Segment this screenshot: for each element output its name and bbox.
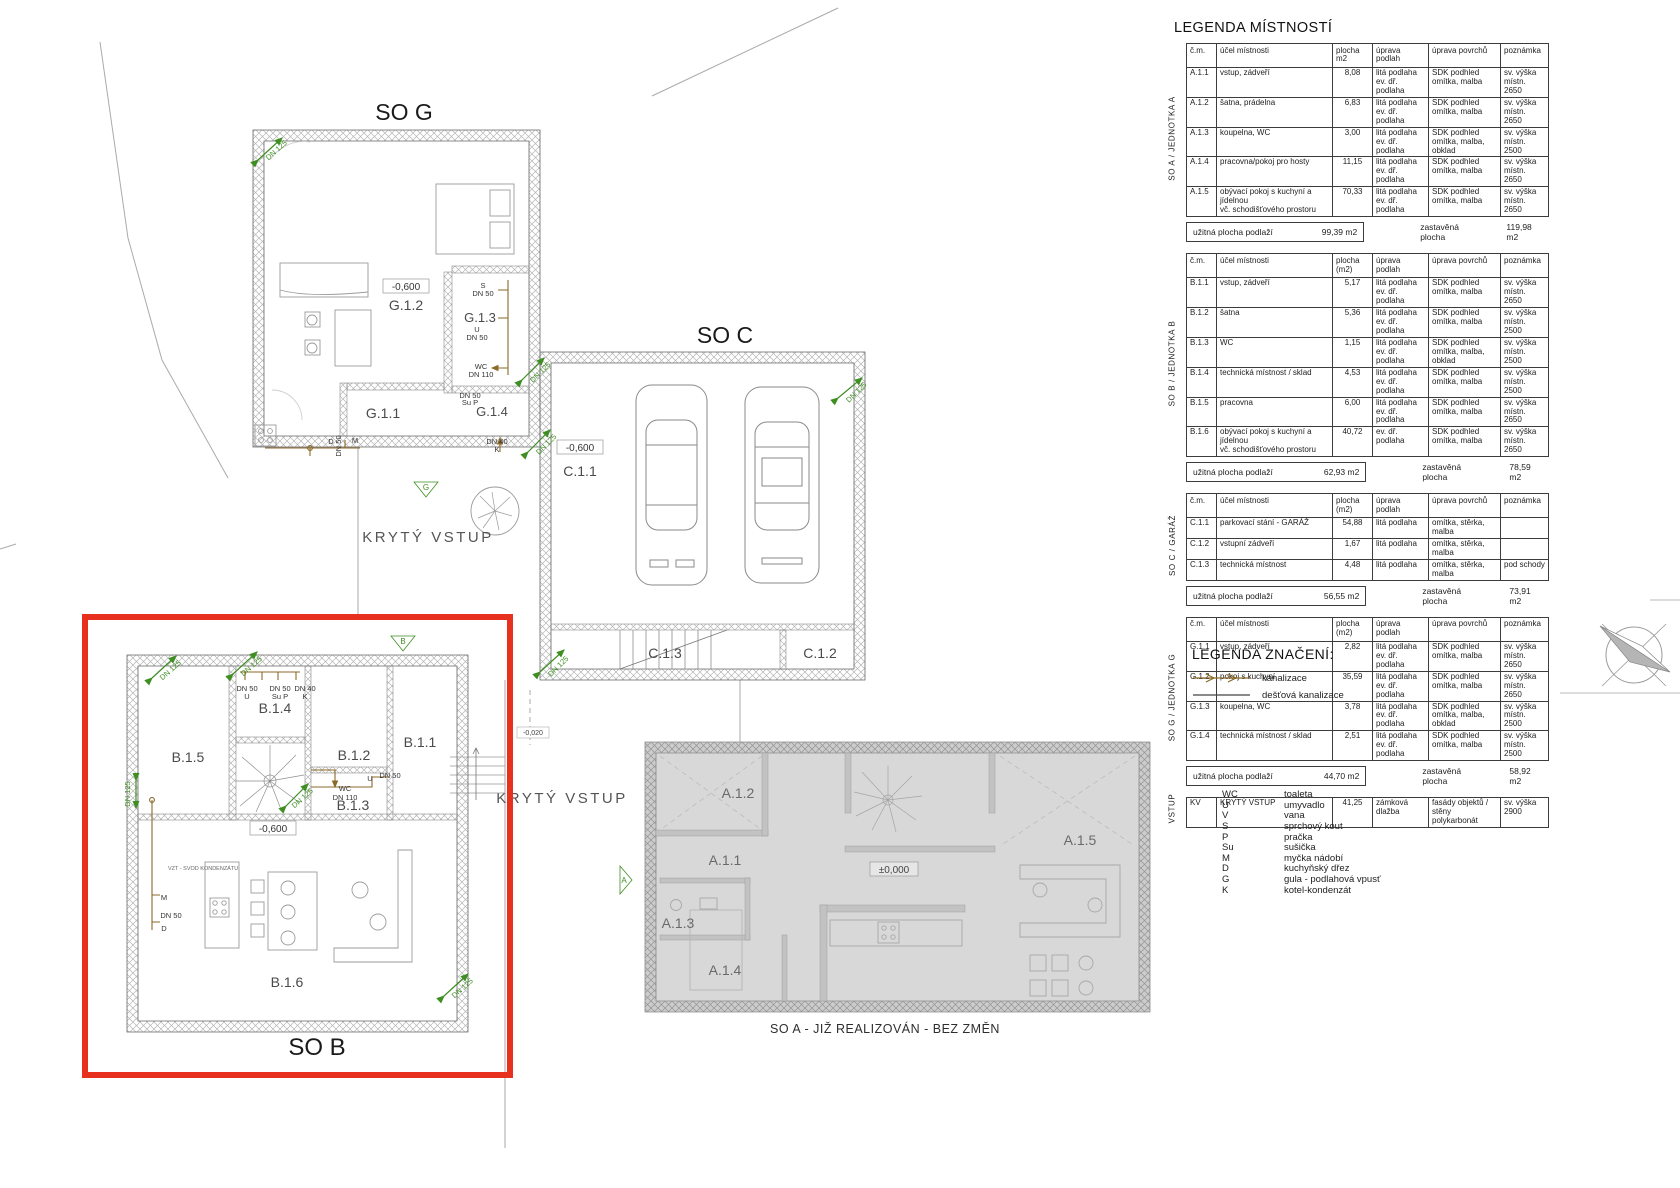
so-b-title: SO B [288, 1034, 345, 1061]
legend-column-header: poznámka [1501, 44, 1549, 68]
legend-table-cell: A.1.3 [1187, 127, 1217, 157]
legend-table-row: B.1.2šatna5,36litá podlaha ev. dř. podla… [1187, 307, 1549, 337]
legend-table-cell: sv. výška místn. 2650 [1501, 427, 1549, 457]
legend-table-cell: omítka, stěrka, malba [1429, 559, 1501, 580]
svg-text:M: M [161, 893, 167, 902]
built-up-area-label: zastavěná plocha [1422, 766, 1479, 786]
legend-table-cell: litá podlaha ev. dř. podlaha [1373, 337, 1429, 367]
legend-table-cell: litá podlaha [1373, 518, 1429, 539]
legend-table-cell: WC [1217, 337, 1333, 367]
room-label-a15: A.1.5 [1064, 832, 1097, 848]
legend-table-cell: technická místnost / sklad [1217, 731, 1333, 761]
symbols-legend: LEGENDA ZNAČENÍ: kanalizace dešťová kana… [1192, 646, 1344, 706]
legend-column-header: plocha (m2) [1333, 494, 1373, 518]
legend-table-cell: SDK podhled omítka, malba [1429, 731, 1501, 761]
svg-text:WC: WC [339, 784, 352, 793]
legend-column-header: plocha (m2) [1333, 254, 1373, 278]
legend-table-cell: parkovací stání - GARÁŽ [1217, 518, 1333, 539]
legend-table-cell: pracovna/pokoj pro hosty [1217, 157, 1333, 187]
legend-table-cell: C.1.3 [1187, 559, 1217, 580]
legend-table-cell: 8,08 [1333, 67, 1373, 97]
usable-area-label: užitná plocha podlaží [1193, 227, 1273, 237]
usable-area-box: užitná plocha podlaží99,39 m2 [1186, 222, 1364, 242]
legend-table-cell: 2,51 [1333, 731, 1373, 761]
legend-table-cell: A.1.2 [1187, 97, 1217, 127]
tree-icon [478, 492, 512, 530]
plain-line-icon [1192, 689, 1254, 701]
built-up-area-label: zastavěná plocha [1422, 462, 1479, 482]
legend-table-cell: SDK podhled omítka, malba [1429, 397, 1501, 427]
legend-column-header: úprava povrchů [1429, 494, 1501, 518]
legend-table: č.m.účel místnostiplocha (m2)úprava podl… [1186, 253, 1549, 457]
rooms-legend-title: LEGENDA MÍSTNOSTÍ [1174, 20, 1540, 36]
abbreviation-label: sprchový kout [1284, 822, 1343, 833]
abbreviation-key: M [1222, 854, 1284, 865]
legend-table-cell: sv. výška místn. 2650 [1501, 671, 1549, 701]
built-up-area-label: zastavěná plocha [1420, 222, 1476, 242]
legend-column-header: č.m. [1187, 617, 1217, 641]
legend-column-header: plocha (m2) [1333, 617, 1373, 641]
legend-table-cell: litá podlaha [1373, 559, 1429, 580]
built-up-area-value: 78,59 m2 [1509, 462, 1540, 482]
legend-table-cell: vstup, zádveří [1217, 67, 1333, 97]
symbol-row-sewer: kanalizace [1192, 672, 1344, 684]
legend-table-side-label: VSTUP [1160, 797, 1184, 820]
legend-summary-row: užitná plocha podlaží44,70 m2zastavěná p… [1186, 766, 1540, 786]
legend-table-cell: ev. dř. podlaha [1373, 427, 1429, 457]
built-up-area-value: 58,92 m2 [1509, 766, 1540, 786]
abbreviation-row: Ssprchový kout [1222, 822, 1381, 833]
svg-text:DN 125: DN 125 [264, 138, 289, 162]
legend-table-cell: 11,15 [1333, 157, 1373, 187]
legend-table-cell: SDK podhled omítka, malba [1429, 157, 1501, 187]
room-label-a13: A.1.3 [662, 915, 695, 931]
legend-table-cell: 6,83 [1333, 97, 1373, 127]
legend-table-cell: vstup, zádveří [1217, 278, 1333, 308]
legend-table-cell: pracovna [1217, 397, 1333, 427]
legend-table-cell: SDK podhled omítka, malba [1429, 278, 1501, 308]
legend-table-cell: C.1.2 [1187, 539, 1217, 560]
legend-table-row: C.1.2vstupní zádveří1,67litá podlahaomít… [1187, 539, 1549, 560]
legend-table-block: SO C / GARÁŽč.m.účel místnostiplocha (m2… [1186, 493, 1540, 606]
legend-table-cell: litá podlaha ev. dř. podlaha [1373, 641, 1429, 671]
built-up-area: zastavěná plocha58,92 m2 [1422, 766, 1540, 786]
symbols-legend-title: LEGENDA ZNAČENÍ: [1192, 646, 1344, 662]
legend-table-cell: A.1.4 [1187, 157, 1217, 187]
room-label-c13: C.1.3 [648, 645, 682, 661]
legend-table-cell: litá podlaha ev. dř. podlaha [1373, 397, 1429, 427]
building-so-c: SO C -0,600 C.1.1 C.1.3 C.1.2 [540, 322, 865, 680]
legend-table-row: G.1.4technická místnost / sklad2,51litá … [1187, 731, 1549, 761]
legend-table-cell: SDK podhled omítka, malba [1429, 367, 1501, 397]
legend-table-cell: technická místnost / sklad [1217, 367, 1333, 397]
abbreviation-row: Kkotel-kondenzát [1222, 886, 1381, 897]
legend-column-header: účel místnosti [1217, 494, 1333, 518]
legend-table-cell: SDK podhled omítka, malba [1429, 97, 1501, 127]
legend-column-header: poznámka [1501, 494, 1549, 518]
so-a-note: SO A - JIŽ REALIZOVÁN - BEZ ZMĚN [770, 1021, 1000, 1036]
built-up-area-label: zastavěná plocha [1422, 586, 1479, 606]
legend-table-row: A.1.2šatna, prádelna6,83litá podlaha ev.… [1187, 97, 1549, 127]
legend-table-cell: 4,48 [1333, 559, 1373, 580]
svg-text:DN 50: DN 50 [160, 911, 181, 920]
room-label-a11: A.1.1 [709, 852, 742, 868]
legend-table-cell: sv. výška místn. 2650 [1501, 641, 1549, 671]
abbreviation-label: kotel-kondenzát [1284, 886, 1351, 897]
legend-table-side-label: SO G / JEDNOTKA G [1160, 617, 1184, 778]
legend-table-cell: 3,00 [1333, 127, 1373, 157]
legend-column-header: účel místnosti [1217, 254, 1333, 278]
so-b-level: -0,600 [259, 824, 288, 835]
legend-table-cell: B.1.4 [1187, 367, 1217, 397]
legend-table-cell: sv. výška místn. 2650 [1501, 187, 1549, 217]
legend-summary-row: užitná plocha podlaží56,55 m2zastavěná p… [1186, 586, 1540, 606]
legend-table-side-label: SO C / GARÁŽ [1160, 493, 1184, 598]
legend-table-block: SO A / JEDNOTKA Ač.m.účel místnostiploch… [1186, 43, 1540, 242]
legend-column-header: poznámka [1501, 254, 1549, 278]
svg-text:DN 110: DN 110 [333, 793, 358, 802]
room-label-b14: B.1.4 [259, 700, 292, 716]
legend-column-header: úprava povrchů [1429, 254, 1501, 278]
legend-table-cell: litá podlaha ev. dř. podlaha [1373, 731, 1429, 761]
legend-table-cell: C.1.1 [1187, 518, 1217, 539]
legend-table-side-label-text: VSTUP [1168, 794, 1177, 824]
car [636, 385, 707, 585]
legend-table-cell: 5,36 [1333, 307, 1373, 337]
legend-table-cell: SDK podhled omítka, malba, obklad [1429, 337, 1501, 367]
legend-table-cell: sv. výška místn. 2650 [1501, 97, 1549, 127]
svg-text:G: G [423, 483, 429, 492]
legend-table-cell: 6,00 [1333, 397, 1373, 427]
legend-table-cell: šatna [1217, 307, 1333, 337]
legend-table-cell: koupelna, WC [1217, 127, 1333, 157]
usable-area-value: 99,39 m2 [1322, 227, 1357, 237]
svg-text:D: D [161, 924, 167, 933]
legend-table-cell: litá podlaha ev. dř. podlaha [1373, 127, 1429, 157]
usable-area-box: užitná plocha podlaží62,93 m2 [1186, 462, 1366, 482]
covered-entry-label-2: KRYTÝ VSTUP [496, 790, 627, 807]
usable-area-box: užitná plocha podlaží56,55 m2 [1186, 586, 1366, 606]
legend-column-header: plocha m2 [1333, 44, 1373, 68]
legend-table-cell: litá podlaha ev. dř. podlaha [1373, 97, 1429, 127]
legend-table-row: C.1.1parkovací stání - GARÁŽ54,88litá po… [1187, 518, 1549, 539]
legend-summary-row: užitná plocha podlaží99,39 m2zastavěná p… [1186, 222, 1540, 242]
legend-table-cell [1501, 539, 1549, 560]
legend-table-cell [1501, 518, 1549, 539]
building-so-g: SO G -0,600 G.1.2 G.1.1 G.1.3 G.1.4 S DN… [253, 99, 540, 457]
legend-table-cell: vstupní zádveří [1217, 539, 1333, 560]
legend-table-block: SO B / JEDNOTKA Bč.m.účel místnostiploch… [1186, 253, 1540, 482]
usable-area-value: 56,55 m2 [1324, 591, 1359, 601]
legend-table-cell: 5,17 [1333, 278, 1373, 308]
legend-column-header: úprava podlah [1373, 494, 1429, 518]
car [745, 387, 819, 583]
legend-table-cell: obývací pokoj s kuchyní a jídelnou vč. s… [1217, 427, 1333, 457]
legend-table-row: C.1.3technická místnost4,48litá podlahao… [1187, 559, 1549, 580]
legend-column-header: účel místnosti [1217, 617, 1333, 641]
legend-table-cell: obývací pokoj s kuchyní a jídelnou vč. s… [1217, 187, 1333, 217]
legend-table-side-label-text: SO G / JEDNOTKA G [1168, 654, 1177, 742]
room-label-b11: B.1.1 [404, 734, 437, 750]
legend-table-cell: SDK podhled omítka, malba, obklad [1429, 127, 1501, 157]
room-label-a14: A.1.4 [709, 962, 742, 978]
legend-table-row: B.1.4technická místnost / sklad4,53litá … [1187, 367, 1549, 397]
legend-table-cell: technická místnost [1217, 559, 1333, 580]
legend-table-cell: 54,88 [1333, 518, 1373, 539]
legend-table-cell: SDK podhled omítka, malba [1429, 67, 1501, 97]
legend-table-cell: litá podlaha ev. dř. podlaha [1373, 157, 1429, 187]
built-up-area-value: 73,91 m2 [1509, 586, 1540, 606]
legend-table-cell: SDK podhled omítka, malba [1429, 307, 1501, 337]
legend-table-cell: omítka, stěrka, malba [1429, 539, 1501, 560]
legend-table-cell: B.1.1 [1187, 278, 1217, 308]
legend-table-side-label-text: SO C / GARÁŽ [1168, 515, 1177, 576]
svg-text:DN 50: DN 50 [379, 771, 400, 780]
built-up-area: zastavěná plocha119,98 m2 [1420, 222, 1540, 242]
svg-text:DN 110: DN 110 [469, 370, 494, 379]
legend-table-cell: B.1.2 [1187, 307, 1217, 337]
abbreviation-key: V [1222, 811, 1284, 822]
legend-table-cell: sv. výška místn. 2650 [1501, 157, 1549, 187]
legend-table-cell: 70,33 [1333, 187, 1373, 217]
so-g-title: SO G [375, 99, 433, 125]
legend-column-header: účel místnosti [1217, 44, 1333, 68]
room-label-b12: B.1.2 [338, 747, 371, 763]
room-label-c11: C.1.1 [563, 463, 597, 479]
rooms-legend: LEGENDA MÍSTNOSTÍ SO A / JEDNOTKA Ač.m.ú… [1172, 20, 1540, 833]
legend-table-cell: sv. výška místn. 2500 [1501, 731, 1549, 761]
legend-column-header: úprava podlah [1373, 44, 1429, 68]
legend-table-cell: sv. výška místn. 2500 [1501, 307, 1549, 337]
svg-text:K: K [494, 445, 499, 454]
so-a-level: ±0,000 [879, 865, 910, 876]
legend-table-cell: A.1.5 [1187, 187, 1217, 217]
legend-table-cell: sv. výška místn. 2500 [1501, 337, 1549, 367]
building-so-b: B.1.5 B.1.4 B.1.2 B.1.1 B.1.3 B.1.6 -0,6… [127, 655, 468, 1061]
legend-table-row: B.1.3WC1,15litá podlaha ev. dř. podlahaS… [1187, 337, 1549, 367]
legend-table-cell: 40,72 [1333, 427, 1373, 457]
room-label-c12: C.1.2 [803, 645, 837, 661]
legend-table-side-label-text: SO A / JEDNOTKA A [1168, 96, 1177, 180]
abbreviation-key: K [1222, 886, 1284, 897]
legend-table-cell: omítka, stěrka, malba [1429, 518, 1501, 539]
legend-table-cell: fasády objektů / stěny polykarbonát [1429, 798, 1501, 828]
north-compass-icon [1586, 612, 1680, 698]
legend-table-cell: zámková dlažba [1373, 798, 1429, 828]
legend-column-header: úprava podlah [1373, 254, 1429, 278]
legend-table-cell: litá podlaha [1373, 539, 1429, 560]
so-c-title: SO C [697, 322, 753, 348]
built-up-area: zastavěná plocha73,91 m2 [1422, 586, 1540, 606]
legend-table-cell: litá podlaha ev. dř. podlaha [1373, 701, 1429, 731]
svg-text:DN 50: DN 50 [334, 435, 343, 456]
legend-table-side-label: SO A / JEDNOTKA A [1160, 43, 1184, 234]
legend-table-row: A.1.4pracovna/pokoj pro hosty11,15litá p… [1187, 157, 1549, 187]
legend-table-cell: 1,67 [1333, 539, 1373, 560]
room-label-g11: G.1.1 [366, 405, 400, 421]
svg-text:Su P: Su P [462, 398, 478, 407]
legend-table-side-label: SO B / JEDNOTKA B [1160, 253, 1184, 474]
legend-table-cell: sv. výška místn. 2650 [1501, 67, 1549, 97]
legend-table-cell: SDK podhled omítka, malba [1429, 641, 1501, 671]
usable-area-label: užitná plocha podlaží [1193, 591, 1273, 601]
usable-area-value: 44,70 m2 [1324, 771, 1359, 781]
room-label-b16: B.1.6 [271, 974, 304, 990]
legend-table-cell: litá podlaha ev. dř. podlaha [1373, 671, 1429, 701]
legend-table-row: B.1.5pracovna6,00litá podlaha ev. dř. po… [1187, 397, 1549, 427]
legend-table-cell: A.1.1 [1187, 67, 1217, 97]
legend-table-cell: sv. výška místn. 2650 [1501, 397, 1549, 427]
so-c-level: -0,600 [566, 443, 595, 454]
rooms-legend-tables: SO A / JEDNOTKA Ač.m.účel místnostiploch… [1172, 43, 1540, 828]
legend-table-row: B.1.6obývací pokoj s kuchyní a jídelnou … [1187, 427, 1549, 457]
legend-column-header: úprava povrchů [1429, 44, 1501, 68]
abbreviation-key: G [1222, 875, 1284, 886]
legend-table-cell: sv. výška místn. 2650 [1501, 278, 1549, 308]
legend-table-row: A.1.5obývací pokoj s kuchyní a jídelnou … [1187, 187, 1549, 217]
legend-column-header: úprava podlah [1373, 617, 1429, 641]
legend-table-row: B.1.1vstup, zádveří5,17litá podlaha ev. … [1187, 278, 1549, 308]
legend-table-cell: SDK podhled omítka, malba [1429, 427, 1501, 457]
usable-area-label: užitná plocha podlaží [1193, 771, 1273, 781]
sewer-arrow-icon [1192, 672, 1254, 684]
built-up-area-value: 119,98 m2 [1506, 222, 1540, 242]
abbreviation-key: Su [1222, 843, 1284, 854]
so-g-pipes [265, 280, 508, 456]
svg-text:DN 125: DN 125 [123, 781, 132, 806]
usable-area-value: 62,93 m2 [1324, 467, 1359, 477]
legend-summary-row: užitná plocha podlaží62,93 m2zastavěná p… [1186, 462, 1540, 482]
legend-table-cell: litá podlaha ev. dř. podlaha [1373, 367, 1429, 397]
abbreviation-list: WCtoaletaUumyvadloVvanaSsprchový koutPpr… [1222, 790, 1381, 896]
legend-table-cell: sv. výška místn. 2500 [1501, 367, 1549, 397]
svg-text:B: B [400, 637, 405, 646]
built-up-area: zastavěná plocha78,59 m2 [1422, 462, 1540, 482]
svg-text:M: M [352, 436, 358, 445]
svg-text:U: U [367, 774, 372, 783]
room-label-b15: B.1.5 [172, 749, 205, 765]
legend-column-header: č.m. [1187, 254, 1217, 278]
symbol-label: dešťová kanalizace [1262, 690, 1344, 701]
legend-table-side-label-text: SO B / JEDNOTKA B [1168, 321, 1177, 407]
legend-table-cell: B.1.5 [1187, 397, 1217, 427]
legend-column-header: č.m. [1187, 494, 1217, 518]
usable-area-box: užitná plocha podlaží44,70 m2 [1186, 766, 1366, 786]
covered-entry-area: KRYTÝ VSTUP KRYTÝ VSTUP -0,020 [362, 487, 627, 807]
legend-table-cell: litá podlaha ev. dř. podlaha [1373, 187, 1429, 217]
symbol-row-rainwater: dešťová kanalizace [1192, 689, 1344, 701]
usable-area-label: užitná plocha podlaží [1193, 467, 1273, 477]
room-label-g13: G.1.3 [464, 310, 496, 325]
abbreviation-key: S [1222, 822, 1284, 833]
entry-level: -0,020 [523, 730, 543, 737]
legend-table-cell: sv. výška místn. 2500 [1501, 127, 1549, 157]
legend-table-cell: 1,15 [1333, 337, 1373, 367]
so-g-level: -0,600 [392, 282, 421, 293]
legend-column-header: úprava povrchů [1429, 617, 1501, 641]
svg-text:U: U [244, 692, 249, 701]
legend-table-cell: sv. výška 2900 [1501, 798, 1549, 828]
svg-text:A: A [621, 876, 627, 885]
svg-text:K: K [302, 692, 307, 701]
legend-table-cell: 4,53 [1333, 367, 1373, 397]
legend-table-cell: litá podlaha ev. dř. podlaha [1373, 67, 1429, 97]
building-so-a: ±0,000 A.1.2 A.1.1 A.1.3 A.1.4 A.1.5 SO … [645, 742, 1150, 1036]
legend-table-cell: sv. výška místn. 2500 [1501, 701, 1549, 731]
svg-text:Su P: Su P [272, 692, 288, 701]
legend-table-row: A.1.3koupelna, WC3,00litá podlaha ev. dř… [1187, 127, 1549, 157]
legend-table: č.m.účel místnostiplocha (m2)úprava podl… [1186, 493, 1549, 581]
legend-table: č.m.účel místnostiplocha m2úprava podlah… [1186, 43, 1549, 217]
legend-table-cell: G.1.4 [1187, 731, 1217, 761]
legend-table-cell: litá podlaha ev. dř. podlaha [1373, 307, 1429, 337]
abbreviation-key: D [1222, 864, 1284, 875]
svg-text:DN 50: DN 50 [466, 333, 487, 342]
legend-table-cell: B.1.6 [1187, 427, 1217, 457]
legend-table-row: A.1.1vstup, zádveří8,08litá podlaha ev. … [1187, 67, 1549, 97]
legend-table-cell: pod schody [1501, 559, 1549, 580]
legend-column-header: č.m. [1187, 44, 1217, 68]
legend-column-header: poznámka [1501, 617, 1549, 641]
legend-table-cell: šatna, prádelna [1217, 97, 1333, 127]
north-compass [1586, 612, 1680, 703]
svg-text:DN 50: DN 50 [472, 289, 493, 298]
legend-table-cell: B.1.3 [1187, 337, 1217, 367]
room-label-a12: A.1.2 [722, 785, 755, 801]
vzt-note: VZT - SVOD KONDENZÁTU [168, 865, 238, 872]
room-label-g12: G.1.2 [389, 297, 423, 313]
room-label-g14: G.1.4 [476, 404, 508, 419]
covered-entry-label-1: KRYTÝ VSTUP [362, 529, 493, 546]
abbreviation-key: U [1222, 801, 1284, 812]
symbol-label: kanalizace [1262, 673, 1307, 684]
abbreviation-key: WC [1222, 790, 1284, 801]
legend-table-cell: litá podlaha ev. dř. podlaha [1373, 278, 1429, 308]
legend-table-cell: SDK podhled omítka, malba [1429, 187, 1501, 217]
legend-table-cell: SDK podhled omítka, malba, obklad [1429, 701, 1501, 731]
legend-table-cell: SDK podhled omítka, malba [1429, 671, 1501, 701]
legend-table-cell: KV [1187, 798, 1217, 828]
